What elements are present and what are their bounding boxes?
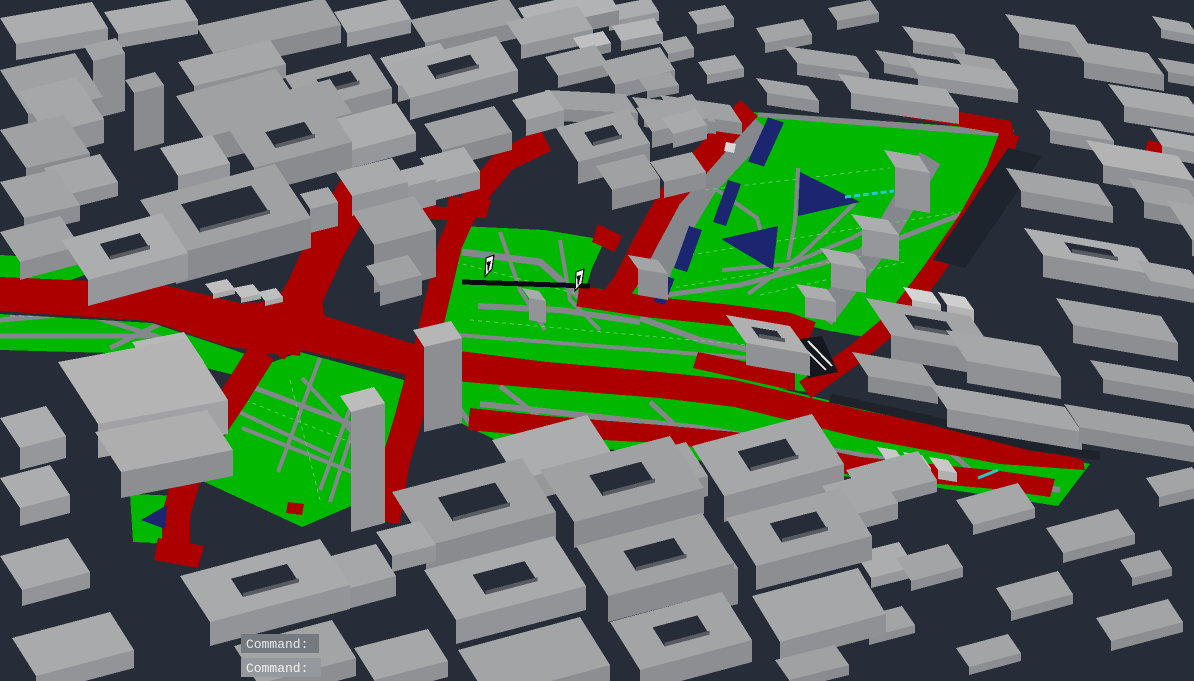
svg-text:Command:: Command:: [246, 661, 308, 676]
svg-text:Command:: Command:: [246, 637, 308, 652]
